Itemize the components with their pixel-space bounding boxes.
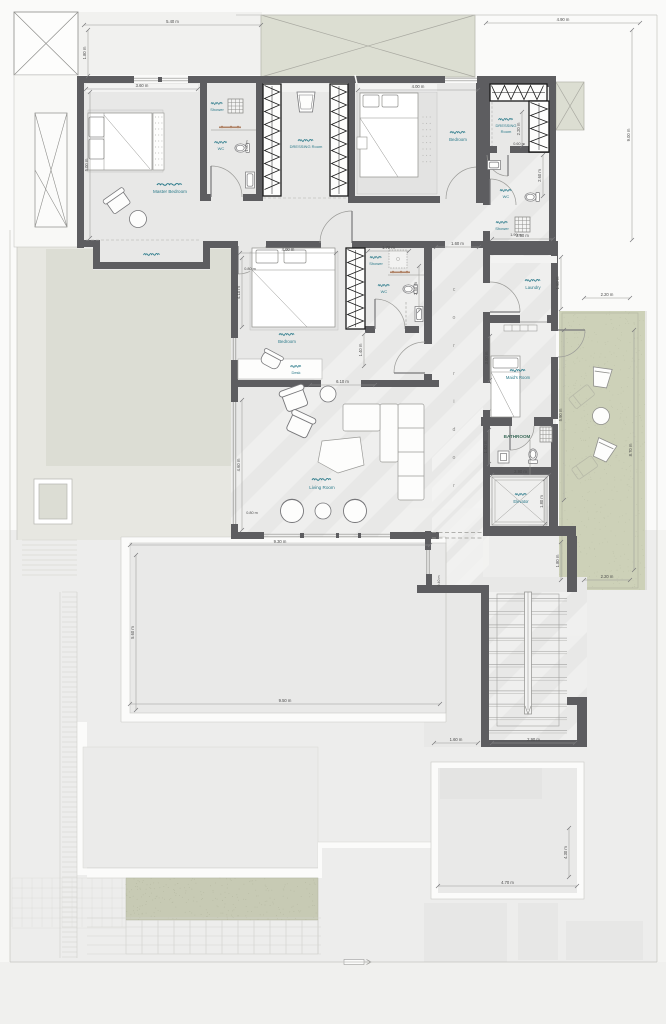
svg-text:1.80 m: 1.80 m bbox=[539, 495, 544, 508]
svg-text:Bedroom: Bedroom bbox=[449, 137, 467, 142]
svg-text:2.20 m: 2.20 m bbox=[601, 574, 614, 579]
svg-text:Elevator: Elevator bbox=[513, 499, 529, 504]
svg-text:0.40 m: 0.40 m bbox=[437, 576, 441, 587]
svg-text:1.60 m: 1.60 m bbox=[245, 141, 249, 152]
svg-text:4.00 m: 4.00 m bbox=[282, 247, 295, 252]
svg-text:DRESSING: DRESSING bbox=[496, 123, 517, 128]
svg-text:d: d bbox=[453, 427, 456, 433]
svg-text:2.50 m: 2.50 m bbox=[413, 282, 418, 295]
svg-text:9.00 m: 9.00 m bbox=[626, 128, 631, 141]
svg-text:2.50 m: 2.50 m bbox=[516, 233, 529, 238]
svg-text:3.00 m: 3.00 m bbox=[484, 351, 489, 364]
svg-text:Living Room: Living Room bbox=[309, 485, 335, 490]
svg-text:Shower: Shower bbox=[369, 261, 383, 266]
svg-text:4.90 m: 4.90 m bbox=[557, 17, 570, 22]
svg-text:Shower: Shower bbox=[495, 226, 509, 231]
svg-text:1.40 m: 1.40 m bbox=[483, 440, 488, 453]
svg-text:9.50 m: 9.50 m bbox=[279, 698, 292, 703]
svg-text:4.70 m: 4.70 m bbox=[501, 880, 514, 885]
svg-text:1.40 m: 1.40 m bbox=[358, 343, 363, 356]
svg-text:4.00 m: 4.00 m bbox=[412, 84, 425, 89]
svg-text:1.60 m: 1.60 m bbox=[450, 737, 463, 742]
svg-text:BATHROOM: BATHROOM bbox=[504, 434, 531, 439]
svg-text:Maid's Room: Maid's Room bbox=[506, 375, 531, 380]
svg-text:0.60 m: 0.60 m bbox=[513, 142, 525, 146]
svg-text:4.30 m: 4.30 m bbox=[563, 846, 568, 859]
svg-text:Laundry: Laundry bbox=[525, 285, 541, 290]
svg-text:i: i bbox=[453, 399, 454, 405]
svg-text:0.80 m: 0.80 m bbox=[246, 511, 258, 515]
svg-text:2.20 m: 2.20 m bbox=[601, 292, 614, 297]
svg-text:Shower: Shower bbox=[210, 107, 224, 112]
svg-text:2.20 m: 2.20 m bbox=[516, 122, 521, 135]
svg-text:Room: Room bbox=[501, 129, 512, 134]
svg-text:4.10 m: 4.10 m bbox=[236, 286, 241, 299]
svg-text:WC: WC bbox=[381, 289, 388, 294]
svg-text:r: r bbox=[453, 343, 455, 349]
svg-text:0.80 m: 0.80 m bbox=[244, 267, 256, 271]
svg-text:WC: WC bbox=[503, 194, 510, 199]
svg-text:c: c bbox=[453, 287, 456, 293]
svg-text:1.72 m: 1.72 m bbox=[382, 245, 395, 250]
svg-text:1.60 m: 1.60 m bbox=[451, 241, 464, 246]
svg-text:2.90 m: 2.90 m bbox=[514, 469, 527, 474]
svg-text:2.90 m: 2.90 m bbox=[527, 737, 540, 742]
svg-text:Desk: Desk bbox=[291, 370, 300, 375]
svg-text:o: o bbox=[453, 455, 456, 461]
svg-text:Master Bedroom: Master Bedroom bbox=[153, 189, 187, 194]
svg-text:9.30 m: 9.30 m bbox=[274, 539, 287, 544]
svg-text:1.80 m: 1.80 m bbox=[82, 46, 87, 59]
svg-text:4.60 m: 4.60 m bbox=[236, 458, 241, 471]
svg-text:5.90 m: 5.90 m bbox=[558, 408, 563, 421]
svg-text:5.00 m: 5.00 m bbox=[84, 158, 89, 171]
svg-text:5.60 m: 5.60 m bbox=[130, 626, 135, 639]
svg-text:1.60 m: 1.60 m bbox=[555, 276, 560, 289]
svg-text:5.40 m: 5.40 m bbox=[166, 19, 179, 24]
svg-text:2.60 m: 2.60 m bbox=[537, 169, 542, 182]
svg-text:1.80 m: 1.80 m bbox=[555, 554, 560, 567]
svg-text:DRESSING Room: DRESSING Room bbox=[290, 144, 323, 149]
svg-text:r: r bbox=[453, 371, 455, 377]
svg-text:Bedroom: Bedroom bbox=[278, 339, 296, 344]
svg-text:6.10 m: 6.10 m bbox=[336, 379, 349, 384]
svg-text:8.70 m: 8.70 m bbox=[628, 443, 633, 456]
svg-text:o: o bbox=[453, 315, 456, 321]
svg-text:r: r bbox=[453, 483, 455, 489]
svg-text:3.60 m: 3.60 m bbox=[136, 83, 149, 88]
svg-text:WC: WC bbox=[218, 146, 225, 151]
